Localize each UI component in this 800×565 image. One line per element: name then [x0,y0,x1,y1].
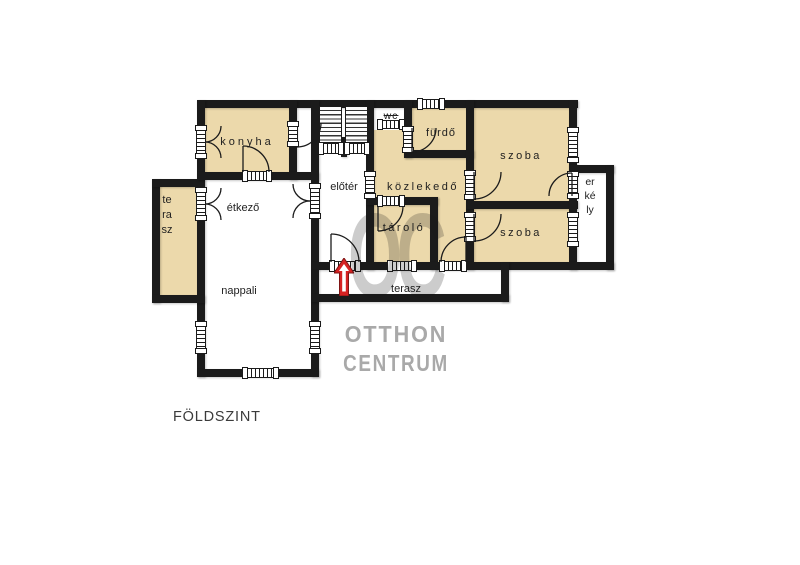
floor-plan-canvas: konyha étkező nappali előtér wc fürdő kö… [0,0,800,565]
window-symbol [568,172,578,198]
wall-segment [501,262,509,302]
wall-segment [466,201,578,209]
window-symbol [196,322,206,353]
wall-segment [152,179,205,187]
window-symbol [465,171,475,199]
room-label-szoba-also: szoba [500,227,542,239]
window-symbol [243,368,278,378]
window-symbol [418,99,444,109]
window-symbol [196,188,206,220]
window-symbol [319,143,343,154]
window-symbol [568,213,578,246]
window-symbol [288,122,298,146]
window-symbol [465,213,475,241]
window-symbol [243,171,271,181]
wall-segment [152,295,205,303]
stair-flight [345,106,368,143]
watermark-logo: OC [348,196,441,316]
window-symbol [345,143,369,154]
watermark-text-line2: CENTRUM [343,352,449,375]
window-symbol [196,126,206,158]
room-label-nappali: nappali [221,285,256,297]
floor-title: FÖLDSZINT [173,409,261,425]
wall-segment [152,179,160,303]
window-symbol [568,128,578,162]
watermark-text-line1: OTTHON [345,323,448,346]
room-label-furdo: fürdő [426,127,456,139]
room-label-szoba-felso: szoba [500,150,542,162]
window-symbol [403,127,413,152]
window-symbol [440,261,466,271]
room-label-terasz-left: terasz [161,193,173,238]
wall-segment [197,100,578,108]
window-symbol [310,322,320,353]
wall-segment [606,165,614,270]
room-label-etkezo: étkező [227,202,259,214]
room-label-erkely: erkély [584,175,596,217]
window-symbol [310,184,320,218]
room-label-wc: wc [384,110,399,122]
wall-segment [404,150,474,158]
stair-flight [319,106,342,143]
room-label-konyha: konyha [220,136,273,148]
